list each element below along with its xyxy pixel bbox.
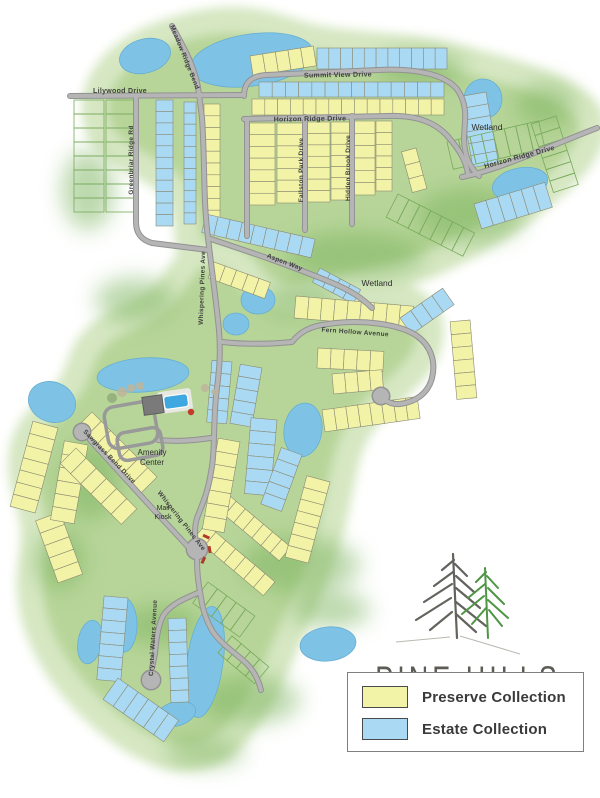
lot-strip — [317, 348, 384, 371]
estate-lot — [391, 82, 404, 97]
estate-lot — [156, 157, 173, 168]
estate-lot — [325, 82, 338, 97]
estate-lot — [317, 48, 329, 69]
preserve-lot — [357, 371, 371, 392]
preserve-lot — [353, 183, 375, 195]
lot-strip — [259, 82, 444, 97]
preserve-swatch — [362, 686, 408, 708]
area-label: Wetland — [471, 122, 502, 132]
preserve-lot — [316, 99, 329, 115]
estate-lot — [364, 48, 376, 69]
amenity-tree — [117, 387, 127, 397]
estate-lot — [259, 82, 272, 97]
amenity-marker — [188, 409, 194, 415]
estate-lot — [312, 82, 325, 97]
street-label: Lilywood Drive — [93, 88, 147, 95]
preserve-lot — [380, 99, 393, 115]
preserve-lot — [418, 99, 431, 115]
preserve-lot — [376, 156, 392, 168]
estate-lot — [184, 180, 196, 191]
lot-strip — [353, 121, 375, 195]
preserve-lot — [303, 99, 316, 115]
estate-lot — [400, 48, 412, 69]
estate-lot — [168, 618, 186, 631]
amenity-tree — [127, 384, 135, 392]
lot-strip — [306, 122, 330, 202]
estate-lot — [341, 48, 353, 69]
estate-lot — [250, 418, 277, 433]
preserve-lot — [376, 179, 392, 191]
estate-lot — [98, 656, 123, 670]
estate-lot — [184, 146, 196, 157]
preserve-label: Preserve Collection — [422, 689, 566, 706]
preserve-lot — [356, 350, 370, 371]
estate-lot — [378, 82, 391, 97]
estate-lot — [184, 191, 196, 202]
estate-lot — [156, 203, 173, 214]
estate-lot — [184, 202, 196, 213]
legend-row-estate: Estate Collection — [362, 716, 583, 742]
preserve-lot — [342, 99, 355, 115]
area-label: Center — [140, 458, 164, 467]
preserve-lot — [333, 299, 348, 322]
preserve-lot — [265, 99, 278, 115]
amenity-tree — [107, 393, 117, 403]
lot-strip — [252, 99, 444, 115]
preserve-lot — [329, 99, 342, 115]
estate-lot — [156, 123, 173, 134]
preserve-lot — [249, 135, 275, 147]
preserve-lot — [455, 372, 476, 387]
preserve-lot — [344, 372, 358, 393]
estate-lot — [352, 82, 365, 97]
estate-lot — [170, 666, 188, 679]
preserve-lot — [370, 351, 384, 372]
estate-lot — [184, 124, 196, 135]
preserve-lot — [353, 121, 375, 133]
estate-lot — [184, 102, 196, 113]
preserve-lot — [330, 349, 344, 370]
preserve-lot — [367, 99, 380, 115]
street-label: Summit View Drive — [304, 71, 372, 79]
estate-lot — [285, 82, 298, 97]
page: Summit View DriveLilywood DriveHorizon R… — [0, 0, 600, 798]
lot-strip — [317, 48, 447, 69]
estate-lot — [329, 48, 341, 69]
preserve-lot — [307, 297, 322, 320]
pine-tree-green-icon — [462, 568, 508, 638]
estate-lot — [247, 456, 274, 471]
estate-lot — [169, 642, 187, 655]
estate-lot — [156, 180, 173, 191]
preserve-lot — [354, 99, 367, 115]
pine-tree-gray-icon — [416, 554, 486, 638]
pond — [223, 313, 249, 335]
preserve-lot — [204, 104, 220, 116]
preserve-lot — [301, 46, 317, 68]
lot-strip — [249, 123, 275, 205]
logo-trees — [368, 526, 568, 658]
estate-lot — [412, 48, 424, 69]
amenity-tree — [201, 384, 209, 392]
preserve-lot — [353, 133, 375, 145]
lot-strip — [168, 618, 189, 703]
road-surface — [70, 95, 244, 96]
lot-strip — [450, 320, 477, 399]
preserve-lot — [331, 122, 350, 133]
pond — [298, 624, 357, 664]
lot-strip — [156, 100, 173, 226]
estate-lot — [156, 169, 173, 180]
preserve-lot — [456, 385, 477, 400]
preserve-lot — [277, 123, 303, 134]
estate-lot — [418, 82, 431, 97]
preserve-lot — [353, 170, 375, 182]
preserve-lot — [453, 359, 474, 374]
street-label: Greenbriar Ridge Rd — [128, 125, 135, 194]
estate-lot — [338, 82, 351, 97]
estate-lot — [184, 157, 196, 168]
estate-lot — [404, 82, 417, 97]
preserve-lot — [252, 99, 265, 115]
amenity-tree — [136, 382, 144, 390]
estate-lot — [156, 215, 173, 226]
preserve-lot — [204, 116, 220, 128]
estate-lot — [168, 630, 186, 643]
preserve-lot — [294, 296, 309, 319]
area-label: Amenity — [138, 448, 167, 457]
estate-lot — [246, 468, 273, 483]
estate-lot — [431, 82, 444, 97]
estate-lot — [156, 134, 173, 145]
preserve-lot — [320, 298, 335, 321]
amenity-tree — [211, 389, 217, 395]
area-label: Mail — [157, 505, 170, 512]
preserve-lot — [353, 158, 375, 170]
estate-lot — [156, 111, 173, 122]
preserve-lot — [393, 99, 406, 115]
preserve-lot — [249, 182, 275, 194]
preserve-lot — [376, 144, 392, 156]
preserve-lot — [376, 168, 392, 180]
preserve-lot — [452, 346, 473, 361]
estate-lot — [184, 135, 196, 146]
preserve-lot — [376, 121, 392, 133]
estate-swatch — [362, 718, 408, 740]
pool — [163, 393, 189, 409]
preserve-lot — [249, 158, 275, 170]
legend-row-preserve: Preserve Collection — [362, 684, 583, 710]
preserve-lot — [249, 123, 275, 135]
estate-lot — [169, 654, 187, 667]
preserve-lot — [306, 179, 330, 190]
estate-lot — [184, 213, 196, 224]
estate-lot — [101, 620, 126, 634]
estate-lot — [103, 596, 128, 610]
preserve-lot — [376, 133, 392, 145]
preserve-lot — [431, 99, 444, 115]
estate-lot — [156, 146, 173, 157]
logo: PINE HILLS — [358, 526, 578, 690]
street-label: Horizon Ridge Drive — [274, 115, 347, 123]
lot-strip — [376, 121, 392, 191]
estate-lot — [156, 100, 173, 111]
estate-lot — [272, 82, 285, 97]
estate-lot — [156, 192, 173, 203]
street-label: Hidden Brook Drive — [345, 135, 352, 201]
preserve-lot — [249, 146, 275, 158]
estate-lot — [102, 608, 127, 622]
estate-lot — [184, 169, 196, 180]
clubhouse-building — [142, 395, 164, 416]
estate-lot — [171, 690, 189, 703]
estate-lot — [352, 48, 364, 69]
preserve-lot — [450, 320, 471, 335]
area-label: Kiosk — [154, 514, 172, 521]
preserve-lot — [406, 99, 419, 115]
estate-lot — [365, 82, 378, 97]
estate-lot — [299, 82, 312, 97]
estate-lot — [184, 113, 196, 124]
preserve-lot — [306, 191, 330, 202]
preserve-lot — [306, 168, 330, 179]
estate-lot — [376, 48, 388, 69]
preserve-lot — [353, 146, 375, 158]
preserve-lot — [249, 170, 275, 182]
preserve-lot — [306, 145, 330, 156]
estate-lot — [249, 430, 276, 445]
preserve-lot — [306, 133, 330, 144]
estate-lot — [170, 678, 188, 691]
preserve-lot — [278, 99, 291, 115]
lot-strip — [184, 102, 196, 224]
preserve-lot — [317, 348, 331, 369]
legend-box: Preserve Collection Estate Collection — [347, 672, 584, 752]
preserve-lot — [204, 128, 220, 140]
preserve-lot — [343, 349, 357, 370]
estate-label: Estate Collection — [422, 721, 547, 738]
preserve-lot — [332, 373, 346, 394]
estate-lot — [435, 48, 447, 69]
estate-lot — [248, 443, 275, 458]
street-label: Fallston Park Drive — [298, 138, 305, 203]
hill-line — [396, 636, 520, 654]
estate-lot — [423, 48, 435, 69]
preserve-lot — [306, 156, 330, 167]
cul-de-sac-surface — [373, 388, 389, 404]
preserve-lot — [249, 193, 275, 205]
preserve-lot — [451, 333, 472, 348]
estate-lot — [388, 48, 400, 69]
preserve-lot — [290, 99, 303, 115]
area-label: Wetland — [361, 278, 392, 288]
estate-lot — [100, 632, 125, 646]
preserve-lot — [306, 122, 330, 133]
estate-lot — [99, 644, 124, 658]
